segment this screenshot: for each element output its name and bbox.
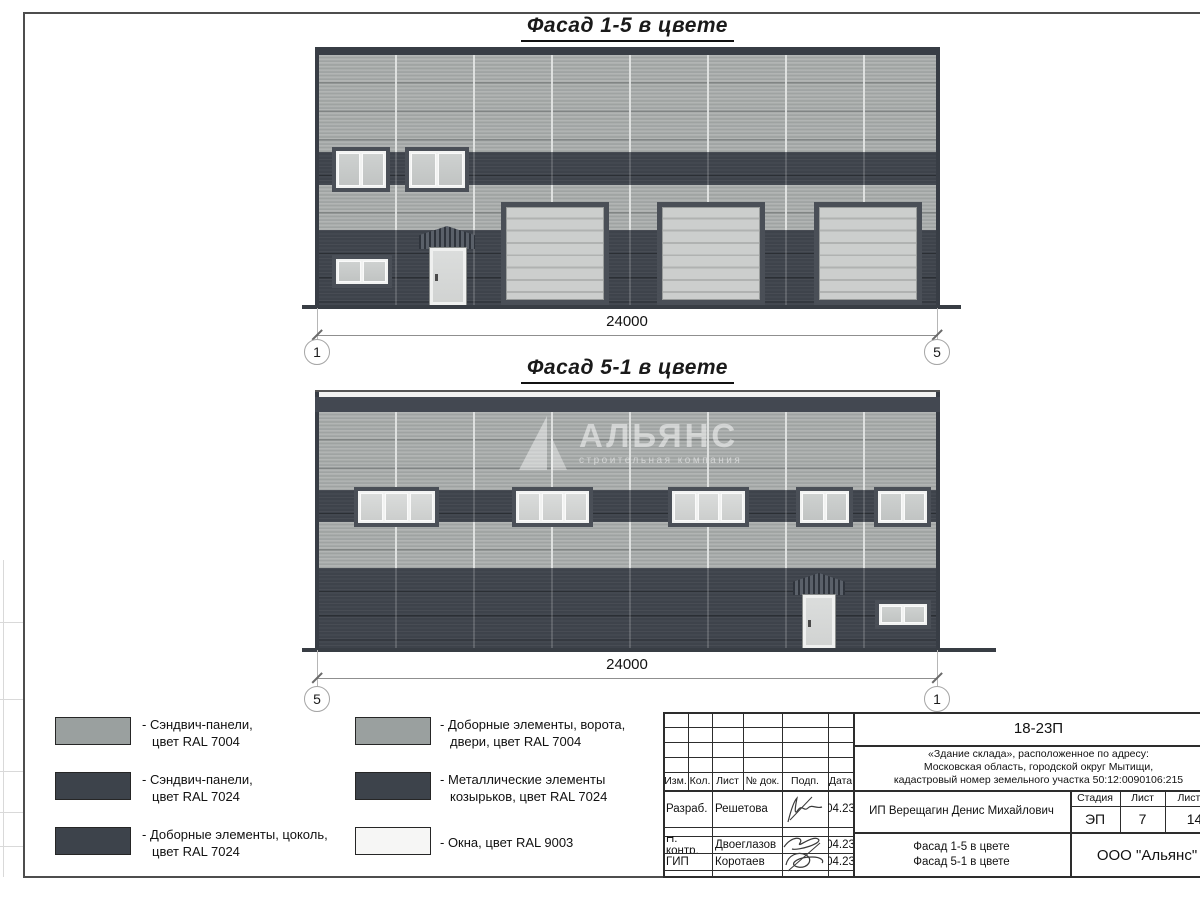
entrance-door — [430, 248, 466, 305]
upper-light-panels — [319, 55, 936, 152]
axis-marker-1: 1 — [924, 686, 950, 712]
company-name: ООО "Альянс" — [1070, 832, 1200, 878]
legend-label: - Окна, цвет RAL 9003 — [440, 834, 573, 851]
dimension-line — [317, 335, 938, 336]
title-block: Изм. Кол. Лист № док. Подп. Дата Разраб.… — [663, 712, 1200, 878]
sheet-label: Лист — [1120, 790, 1165, 806]
legend-swatch — [355, 772, 431, 800]
window — [874, 487, 931, 527]
project-address: «Здание склада», расположенное по адресу… — [853, 745, 1200, 790]
entrance-door — [803, 595, 835, 648]
developer-date: 04.23 — [828, 790, 853, 827]
sheet-value: 7 — [1120, 806, 1165, 832]
col-kol: Кол. — [688, 772, 712, 790]
window — [796, 487, 853, 527]
parapet-band — [315, 397, 940, 412]
role-developer: Разраб. — [663, 790, 712, 827]
legend-label: - Сэндвич-панели,цвет RAL 7024 — [142, 771, 253, 805]
drawing-sheet: { "facade1": { "title": "Фасад 1-5 в цве… — [0, 0, 1200, 900]
ground-line — [302, 305, 961, 309]
col-doc: № док. — [743, 772, 782, 790]
legend-swatch — [55, 717, 131, 745]
role-norm-control: Н. контр. — [663, 836, 712, 853]
signature — [782, 792, 828, 826]
role-gip: ГИП — [663, 853, 712, 870]
legend-swatch — [355, 717, 431, 745]
mid-light-panels — [319, 522, 936, 568]
developer-name: Решетова — [712, 790, 782, 827]
norm-control-name: Двоеглазов — [712, 836, 782, 853]
legend-label: - Сэндвич-панели,цвет RAL 7004 — [142, 716, 253, 750]
sheets-value: 14 — [1165, 806, 1200, 832]
window — [875, 600, 931, 629]
upper-light-panels — [319, 412, 936, 490]
legend-swatch — [55, 827, 131, 855]
col-list: Лист — [712, 772, 743, 790]
window — [668, 487, 749, 527]
window — [332, 147, 390, 192]
window — [512, 487, 593, 527]
stage-label: Стадия — [1070, 790, 1120, 806]
facade-1-5-title: Фасад 1-5 в цвете — [315, 14, 940, 42]
legend-label: - Доборные элементы, ворота,двери, цвет … — [440, 716, 625, 750]
axis-marker-5: 5 — [304, 686, 330, 712]
legend-label: - Металлические элементыкозырьков, цвет … — [440, 771, 607, 805]
dimension-line — [317, 678, 938, 679]
dimension-value: 24000 — [562, 313, 692, 330]
drawing-title: Фасад 1-5 в цвете Фасад 5-1 в цвете — [853, 832, 1070, 878]
client-name: ИП Верещагин Денис Михайлович — [853, 790, 1070, 832]
frame-left — [23, 12, 25, 878]
window — [332, 255, 392, 288]
parapet-cap — [315, 47, 940, 55]
dimension-value: 24000 — [562, 656, 692, 673]
facade-5-1-title: Фасад 5-1 в цвете — [315, 356, 940, 384]
signature — [778, 831, 830, 875]
gip-name: Коротаев — [712, 853, 782, 870]
sheets-label: Листов — [1165, 790, 1200, 806]
sectional-gate — [814, 202, 922, 305]
legend-label: - Доборные элементы, цоколь,цвет RAL 702… — [142, 826, 328, 860]
col-podp: Подп. — [782, 772, 828, 790]
doc-number: 18-23П — [853, 712, 1200, 745]
window — [354, 487, 439, 527]
window — [405, 147, 469, 192]
sectional-gate — [657, 202, 765, 305]
col-data: Дата — [828, 772, 853, 790]
stage-value: ЭП — [1070, 806, 1120, 832]
col-izm: Изм. — [663, 772, 688, 790]
ground-line — [302, 648, 996, 652]
norm-control-date: 04.23 — [828, 836, 853, 853]
legend-swatch — [355, 827, 431, 855]
legend-swatch — [55, 772, 131, 800]
gip-date: 04.23 — [828, 853, 853, 870]
plinth-dark-panels — [319, 568, 936, 648]
sectional-gate — [501, 202, 609, 305]
facade-1-5-drawing — [315, 47, 940, 305]
facade-5-1-drawing: АЛЬЯНС строительная компания — [315, 390, 940, 648]
